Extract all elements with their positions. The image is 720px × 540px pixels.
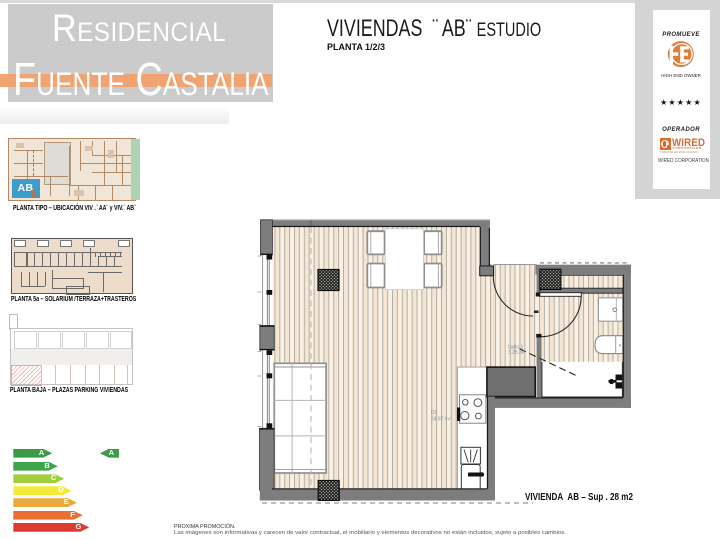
svg-text:24.87 m²: 24.87 m²	[431, 417, 451, 423]
svg-text:D1: D1	[431, 410, 438, 416]
svg-text:3.25 m²: 3.25 m²	[508, 350, 525, 356]
